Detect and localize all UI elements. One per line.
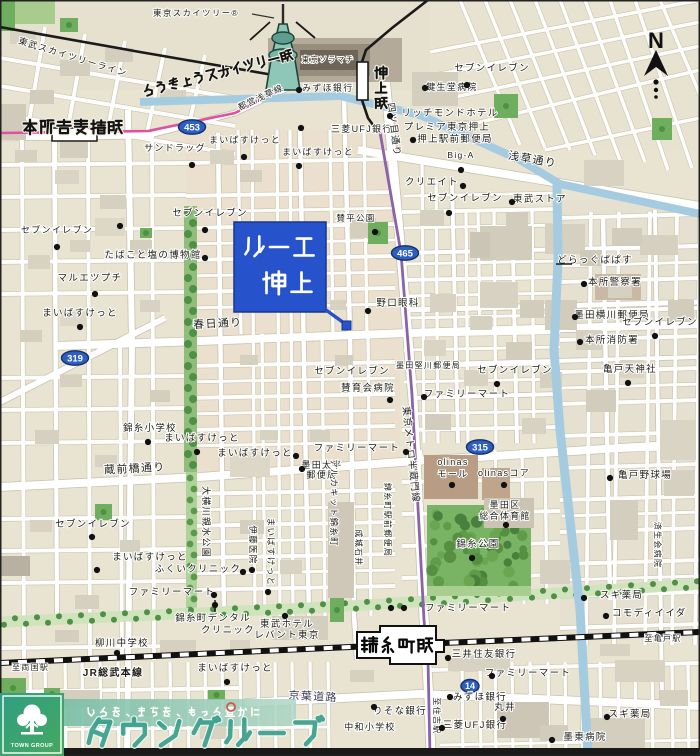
svg-text:465: 465 bbox=[397, 248, 414, 259]
svg-text:セブンイレブン: セブンイレブン bbox=[622, 316, 698, 328]
svg-text:TOWN GROUP: TOWN GROUP bbox=[11, 743, 53, 749]
svg-text:セブンイレブン: セブンイレブン bbox=[314, 365, 390, 377]
svg-text:アルカキット錦糸町: アルカキット錦糸町 bbox=[329, 459, 339, 547]
svg-text:まいばすけっと: まいばすけっと bbox=[42, 308, 118, 319]
svg-text:まいばすけっと: まいばすけっと bbox=[197, 663, 273, 674]
svg-text:りそな銀行: りそな銀行 bbox=[373, 705, 427, 717]
svg-text:クリニック: クリニック bbox=[201, 625, 255, 636]
svg-text:三井住友銀行: 三井住友銀行 bbox=[452, 648, 517, 660]
svg-text:セブンイレブン: セブンイレブン bbox=[21, 224, 93, 235]
svg-text:サンドラッグ: サンドラッグ bbox=[144, 142, 206, 153]
svg-text:東武ストア: 東武ストア bbox=[513, 193, 567, 205]
svg-text:三菱UFJ銀行: 三菱UFJ銀行 bbox=[443, 719, 508, 731]
svg-text:まいばすけっと: まいばすけっと bbox=[266, 518, 276, 587]
svg-text:セブンイレブン: セブンイレブン bbox=[427, 192, 503, 204]
svg-text:三菱UFJ銀行: 三菱UFJ銀行 bbox=[331, 123, 393, 134]
svg-text:大横川親水公園: 大横川親水公園 bbox=[201, 486, 212, 558]
svg-text:至両国駅: 至両国駅 bbox=[12, 663, 49, 672]
svg-text:東京ソラマチ: 東京ソラマチ bbox=[302, 54, 355, 64]
svg-text:総合体育館: 総合体育館 bbox=[479, 510, 531, 521]
svg-text:亀戸天神社: 亀戸天神社 bbox=[603, 363, 657, 375]
svg-text:錦糸町デンタル: 錦糸町デンタル bbox=[175, 612, 251, 624]
svg-text:墨東病院: 墨東病院 bbox=[563, 731, 606, 743]
svg-text:ファミリーマート: ファミリーマート bbox=[425, 603, 511, 614]
svg-text:野口眼科: 野口眼科 bbox=[376, 297, 419, 309]
svg-text:東武ホテル: 東武ホテル bbox=[260, 618, 314, 630]
svg-text:スギ薬局: スギ薬局 bbox=[608, 708, 651, 720]
svg-text:本所消防署: 本所消防署 bbox=[585, 334, 639, 346]
svg-text:至亀戸駅: 至亀戸駅 bbox=[644, 633, 681, 643]
svg-text:亀戸野球場: 亀戸野球場 bbox=[618, 469, 672, 481]
svg-text:N: N bbox=[648, 28, 664, 53]
svg-text:まいばすけっと: まいばすけっと bbox=[164, 433, 240, 444]
svg-text:まいばすけっと: まいばすけっと bbox=[217, 448, 293, 459]
svg-text:ファミリーマート: ファミリーマート bbox=[485, 668, 571, 679]
svg-text:伊藤医院: 伊藤医院 bbox=[248, 525, 258, 564]
svg-text:スギ薬局: スギ薬局 bbox=[600, 589, 643, 601]
svg-text:墨田区: 墨田区 bbox=[490, 500, 521, 510]
svg-text:セブンイレブン: セブンイレブン bbox=[55, 518, 131, 530]
svg-text:olinas: olinas bbox=[437, 457, 468, 467]
svg-text:セブンイレブン: セブンイレブン bbox=[454, 62, 530, 74]
svg-text:丸井: 丸井 bbox=[494, 701, 516, 713]
svg-text:ファミリーマート: ファミリーマート bbox=[424, 389, 510, 400]
svg-text:453: 453 bbox=[184, 122, 200, 133]
svg-text:ファミリーマート: ファミリーマート bbox=[314, 443, 400, 454]
svg-text:モール: モール bbox=[438, 469, 469, 479]
svg-text:319: 319 bbox=[67, 353, 83, 364]
svg-text:14: 14 bbox=[465, 681, 475, 691]
svg-text:リッチモンドホテル: リッチモンドホテル bbox=[401, 108, 498, 119]
svg-text:柳川中学校: 柳川中学校 bbox=[95, 637, 149, 649]
svg-text:錦糸公園: 錦糸公園 bbox=[456, 538, 499, 550]
svg-text:本所警察署: 本所警察署 bbox=[588, 276, 642, 288]
svg-text:中和小学校: 中和小学校 bbox=[344, 721, 396, 732]
svg-text:賛平公園: 賛平公園 bbox=[336, 213, 375, 223]
svg-text:鍵生堂病院: 鍵生堂病院 bbox=[426, 81, 478, 92]
svg-text:ふくいクリニック: ふくいクリニック bbox=[155, 564, 241, 575]
svg-text:Big-A: Big-A bbox=[447, 150, 474, 160]
svg-text:みずほ銀行: みずほ銀行 bbox=[302, 82, 354, 93]
svg-text:マルエツプチ: マルエツプチ bbox=[58, 273, 123, 284]
svg-text:まいばすけっと: まいばすけっと bbox=[282, 147, 354, 157]
svg-text:ファミリーマート: ファミリーマート bbox=[129, 587, 215, 598]
svg-text:成城石井: 成城石井 bbox=[354, 529, 364, 566]
svg-text:春日通り: 春日通り bbox=[193, 316, 243, 332]
svg-text:315: 315 bbox=[472, 442, 489, 453]
svg-text:セブンイレブン: セブンイレブン bbox=[172, 207, 248, 219]
svg-text:コモディイイダ: コモディイイダ bbox=[612, 607, 687, 619]
svg-text:クリエイト: クリエイト bbox=[405, 177, 459, 188]
svg-text:セブンイレブン: セブンイレブン bbox=[477, 364, 553, 376]
svg-text:錦糸町駅前郵便局: 錦糸町駅前郵便局 bbox=[383, 483, 393, 557]
svg-text:まいばすけっと: まいばすけっと bbox=[112, 552, 188, 563]
svg-text:墨田堅川郵便局: 墨田堅川郵便局 bbox=[396, 360, 461, 370]
svg-text:済生会病院: 済生会病院 bbox=[653, 522, 663, 569]
svg-text:まいばすけっと: まいばすけっと bbox=[209, 135, 281, 145]
svg-text:レバント東京: レバント東京 bbox=[254, 629, 319, 641]
svg-text:olinasコア: olinasコア bbox=[478, 468, 530, 478]
svg-text:プレミア東京押上: プレミア東京押上 bbox=[404, 121, 490, 133]
svg-text:東京スカイツリー®: 東京スカイツリー® bbox=[153, 8, 239, 18]
svg-text:JR総武本線: JR総武本線 bbox=[83, 666, 144, 679]
svg-text:押上駅前郵便局: 押上駅前郵便局 bbox=[417, 133, 493, 145]
svg-text:賛育会病院: 賛育会病院 bbox=[341, 382, 395, 394]
svg-text:たばこと塩の博物館: たばこと塩の博物館 bbox=[104, 249, 201, 261]
